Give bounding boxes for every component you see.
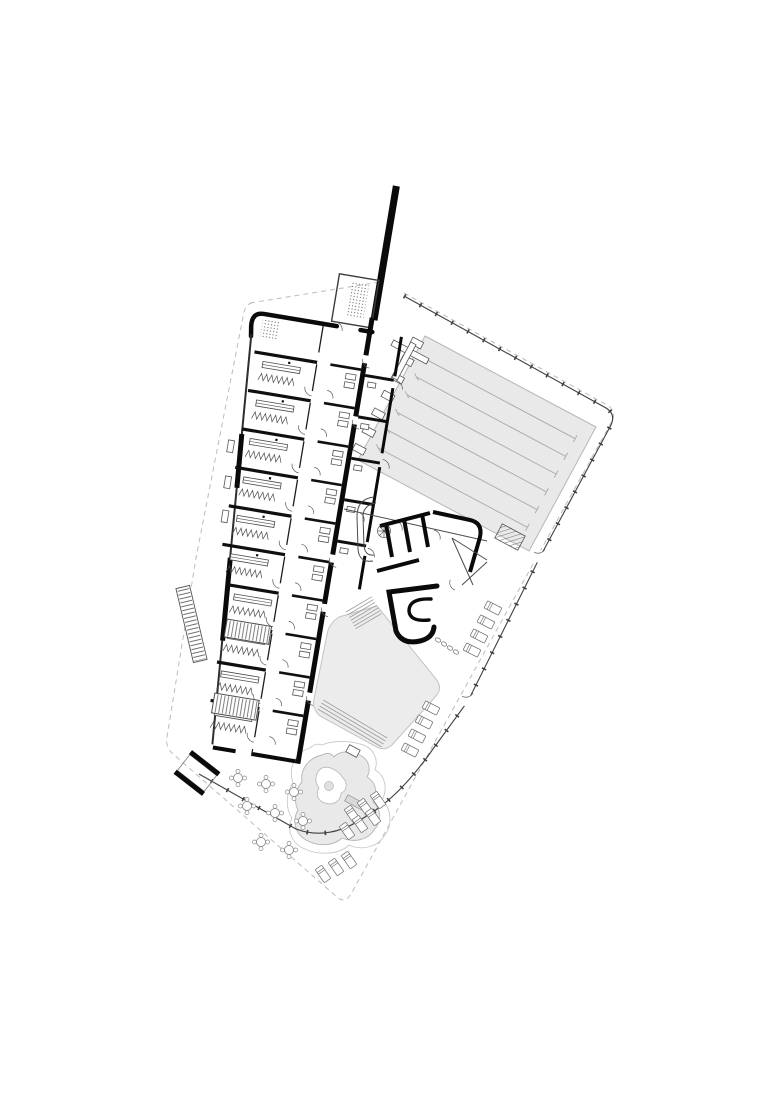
island-planter bbox=[325, 782, 334, 791]
floor-plan-drawing bbox=[0, 0, 780, 1103]
site-plan-page bbox=[0, 0, 780, 1103]
nw-entry-mat bbox=[260, 318, 281, 341]
